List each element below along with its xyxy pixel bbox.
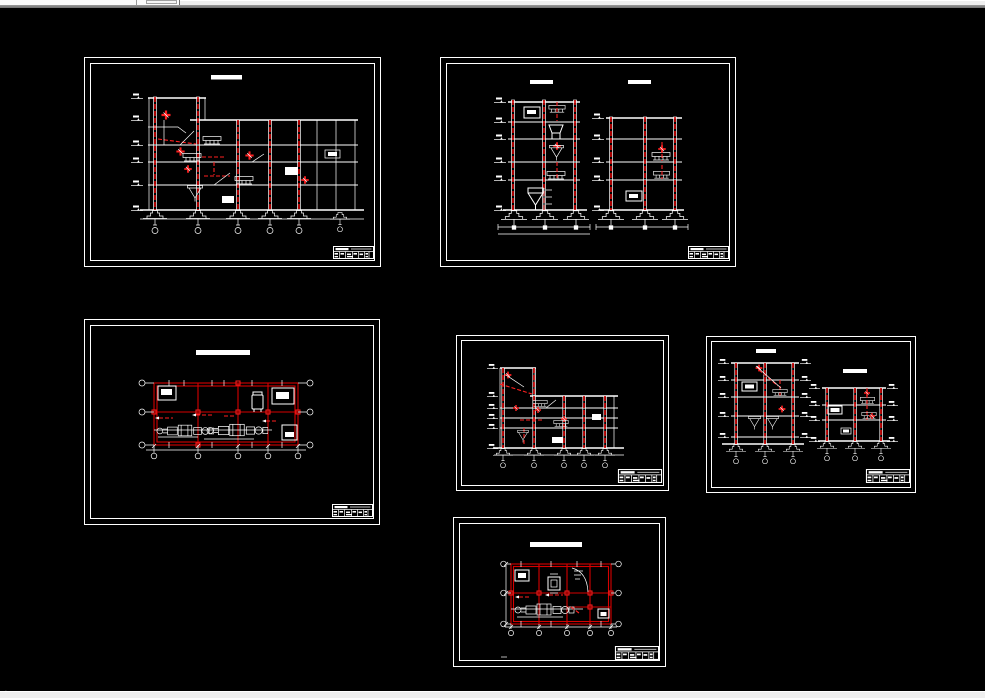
drawing-sheet-3[interactable] xyxy=(84,319,380,525)
title-block xyxy=(618,470,661,483)
column xyxy=(237,120,240,210)
column xyxy=(154,97,157,210)
window-chrome-top xyxy=(0,0,985,8)
title-block xyxy=(333,505,373,517)
tower-b-section xyxy=(592,114,688,231)
drawing-title-blob xyxy=(196,350,250,355)
drawing-title-blob xyxy=(211,75,242,80)
drawing-sheet-6[interactable] xyxy=(453,517,666,667)
toolbar-field-fragment[interactable] xyxy=(146,0,177,4)
drawing-sheet-5[interactable] xyxy=(706,336,916,493)
title-block xyxy=(689,247,729,259)
sheet-frame xyxy=(441,58,736,267)
tower-a-section xyxy=(494,98,590,235)
plan-machinery xyxy=(511,594,583,618)
foundations xyxy=(140,211,364,234)
drawing-sheet-1[interactable] xyxy=(84,57,381,267)
statusbar-fragment[interactable] xyxy=(0,691,985,698)
plan-machinery xyxy=(154,414,278,440)
drawing-title-blob xyxy=(530,80,553,84)
sheet-2-drawing[interactable] xyxy=(440,57,736,267)
tower-b-section xyxy=(809,384,898,461)
title-block xyxy=(866,470,909,483)
plan-grid xyxy=(152,380,300,448)
drawing-title-blob xyxy=(628,80,651,84)
column xyxy=(298,120,301,210)
equipment xyxy=(148,111,340,204)
plan-rooms xyxy=(158,386,297,440)
drawing-title-blob xyxy=(530,542,582,547)
title-block xyxy=(334,247,374,259)
drawing-title-blob xyxy=(843,369,867,373)
drawing-sheet-4[interactable] xyxy=(456,335,669,491)
column xyxy=(269,120,272,210)
sheet-frame xyxy=(454,518,666,667)
sheet-5-drawing[interactable] xyxy=(706,336,916,493)
tower-a-section xyxy=(718,359,811,464)
section-drawing xyxy=(131,94,364,234)
sheet-1-drawing[interactable] xyxy=(84,57,381,267)
cad-application-window xyxy=(0,0,985,698)
drawing-sheet-2[interactable] xyxy=(440,57,736,267)
sheet-6-drawing[interactable] xyxy=(453,517,666,667)
sheet-4-drawing[interactable] xyxy=(456,335,669,491)
title-block xyxy=(615,647,658,660)
level-markers xyxy=(131,94,143,211)
section-drawing xyxy=(487,364,624,468)
model-space-canvas[interactable] xyxy=(0,8,985,691)
drawing-title-blob xyxy=(756,349,776,353)
sheet-3-drawing[interactable] xyxy=(84,319,380,525)
